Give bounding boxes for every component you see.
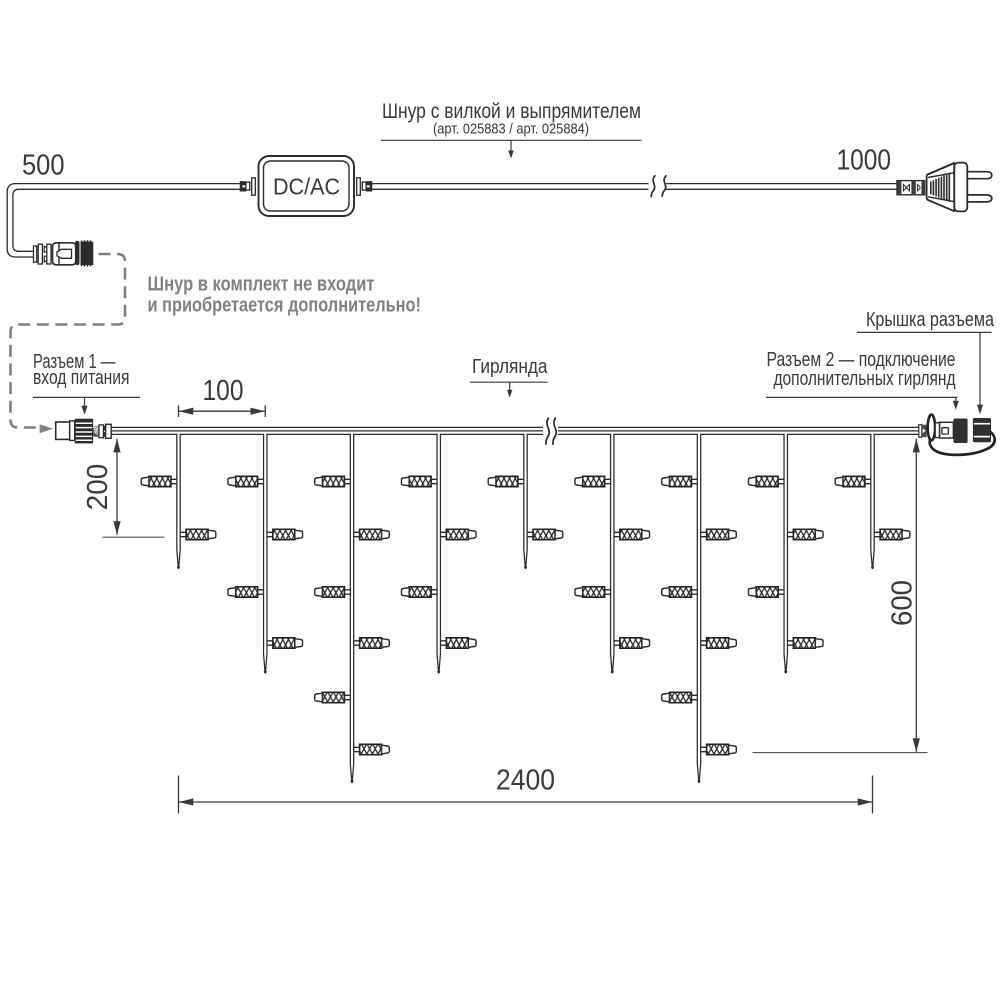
- svg-text:200: 200: [82, 464, 114, 511]
- svg-text:1000: 1000: [837, 144, 892, 176]
- svg-text:Крышка разъема: Крышка разъема: [866, 309, 995, 331]
- svg-text:2400: 2400: [496, 765, 555, 797]
- svg-text:100: 100: [203, 375, 244, 407]
- svg-text:дополнительных гирлянд: дополнительных гирлянд: [774, 368, 956, 390]
- svg-text:и приобретается дополнительно!: и приобретается дополнительно!: [148, 293, 422, 316]
- svg-text:500: 500: [22, 150, 65, 182]
- svg-text:Шнур с вилкой и выпрямителем: Шнур с вилкой и выпрямителем: [382, 99, 641, 123]
- svg-text:DC/AC: DC/AC: [273, 174, 340, 200]
- svg-text:вход питания: вход питания: [33, 367, 130, 389]
- svg-text:Гирлянда: Гирлянда: [472, 356, 548, 378]
- svg-text:(арт. 025883 / арт. 025884): (арт. 025883 / арт. 025884): [433, 121, 589, 138]
- svg-text:Шнур в комплект не входит: Шнур в комплект не входит: [148, 273, 375, 296]
- svg-text:600: 600: [886, 580, 918, 626]
